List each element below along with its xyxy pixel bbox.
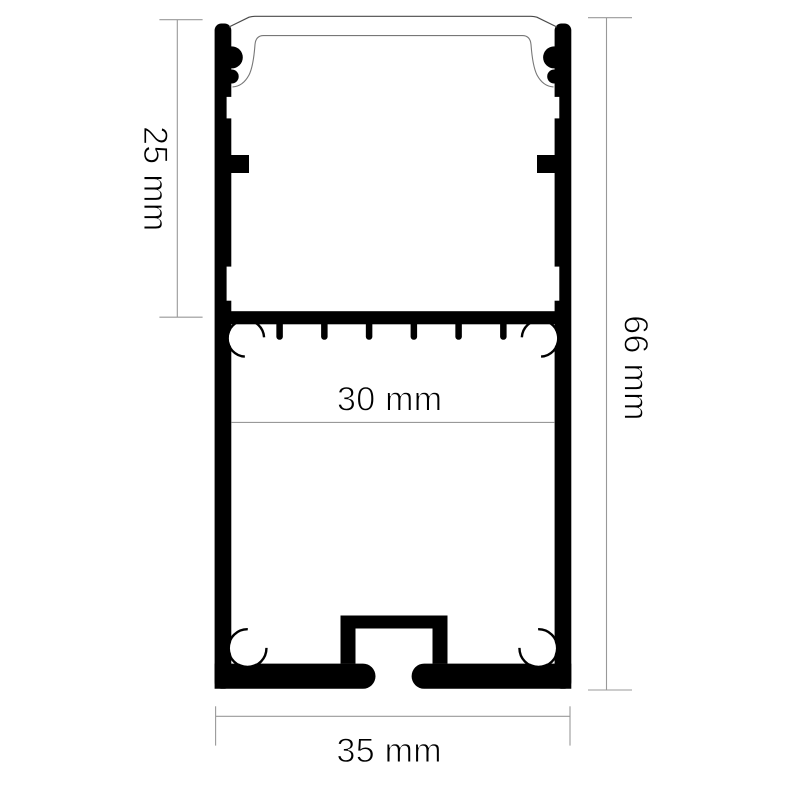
svg-text:35 mm: 35 mm bbox=[336, 732, 441, 770]
svg-text:66 mm: 66 mm bbox=[617, 315, 655, 420]
svg-text:30 mm: 30 mm bbox=[337, 380, 442, 418]
svg-text:25 mm: 25 mm bbox=[136, 126, 174, 231]
